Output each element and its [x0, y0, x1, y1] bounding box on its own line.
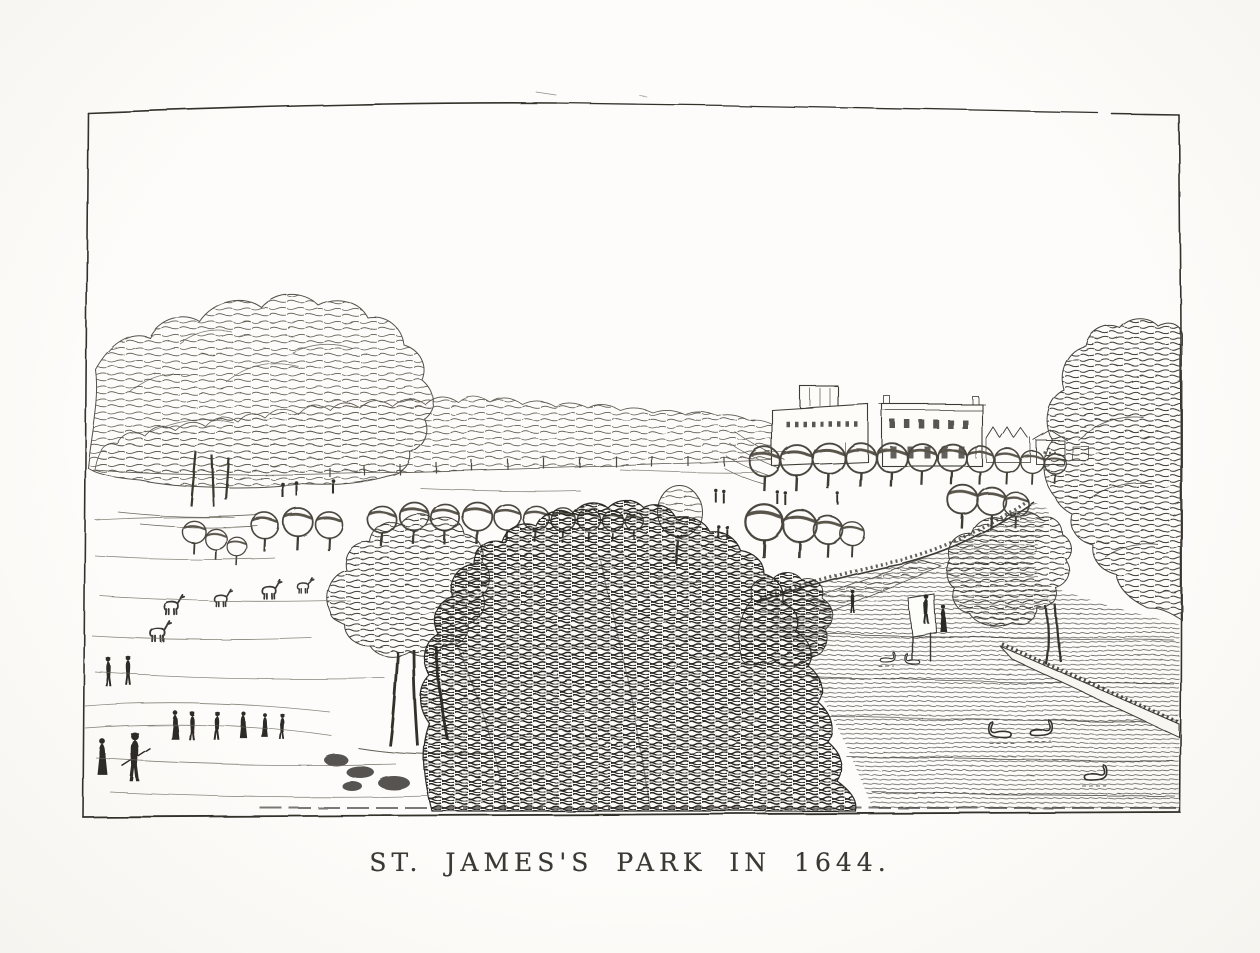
deer-group: [151, 578, 314, 642]
central-tree-mass: [421, 501, 856, 812]
left-tree-group: [88, 295, 433, 528]
engraving-drawing: [83, 92, 1182, 817]
engraving-plate: [0, 0, 1260, 953]
caption: ST. JAMES'S PARK IN 1644.: [0, 848, 1260, 877]
foreground-rocks: [324, 754, 410, 791]
book-page: ST. JAMES'S PARK IN 1644.: [0, 0, 1260, 953]
